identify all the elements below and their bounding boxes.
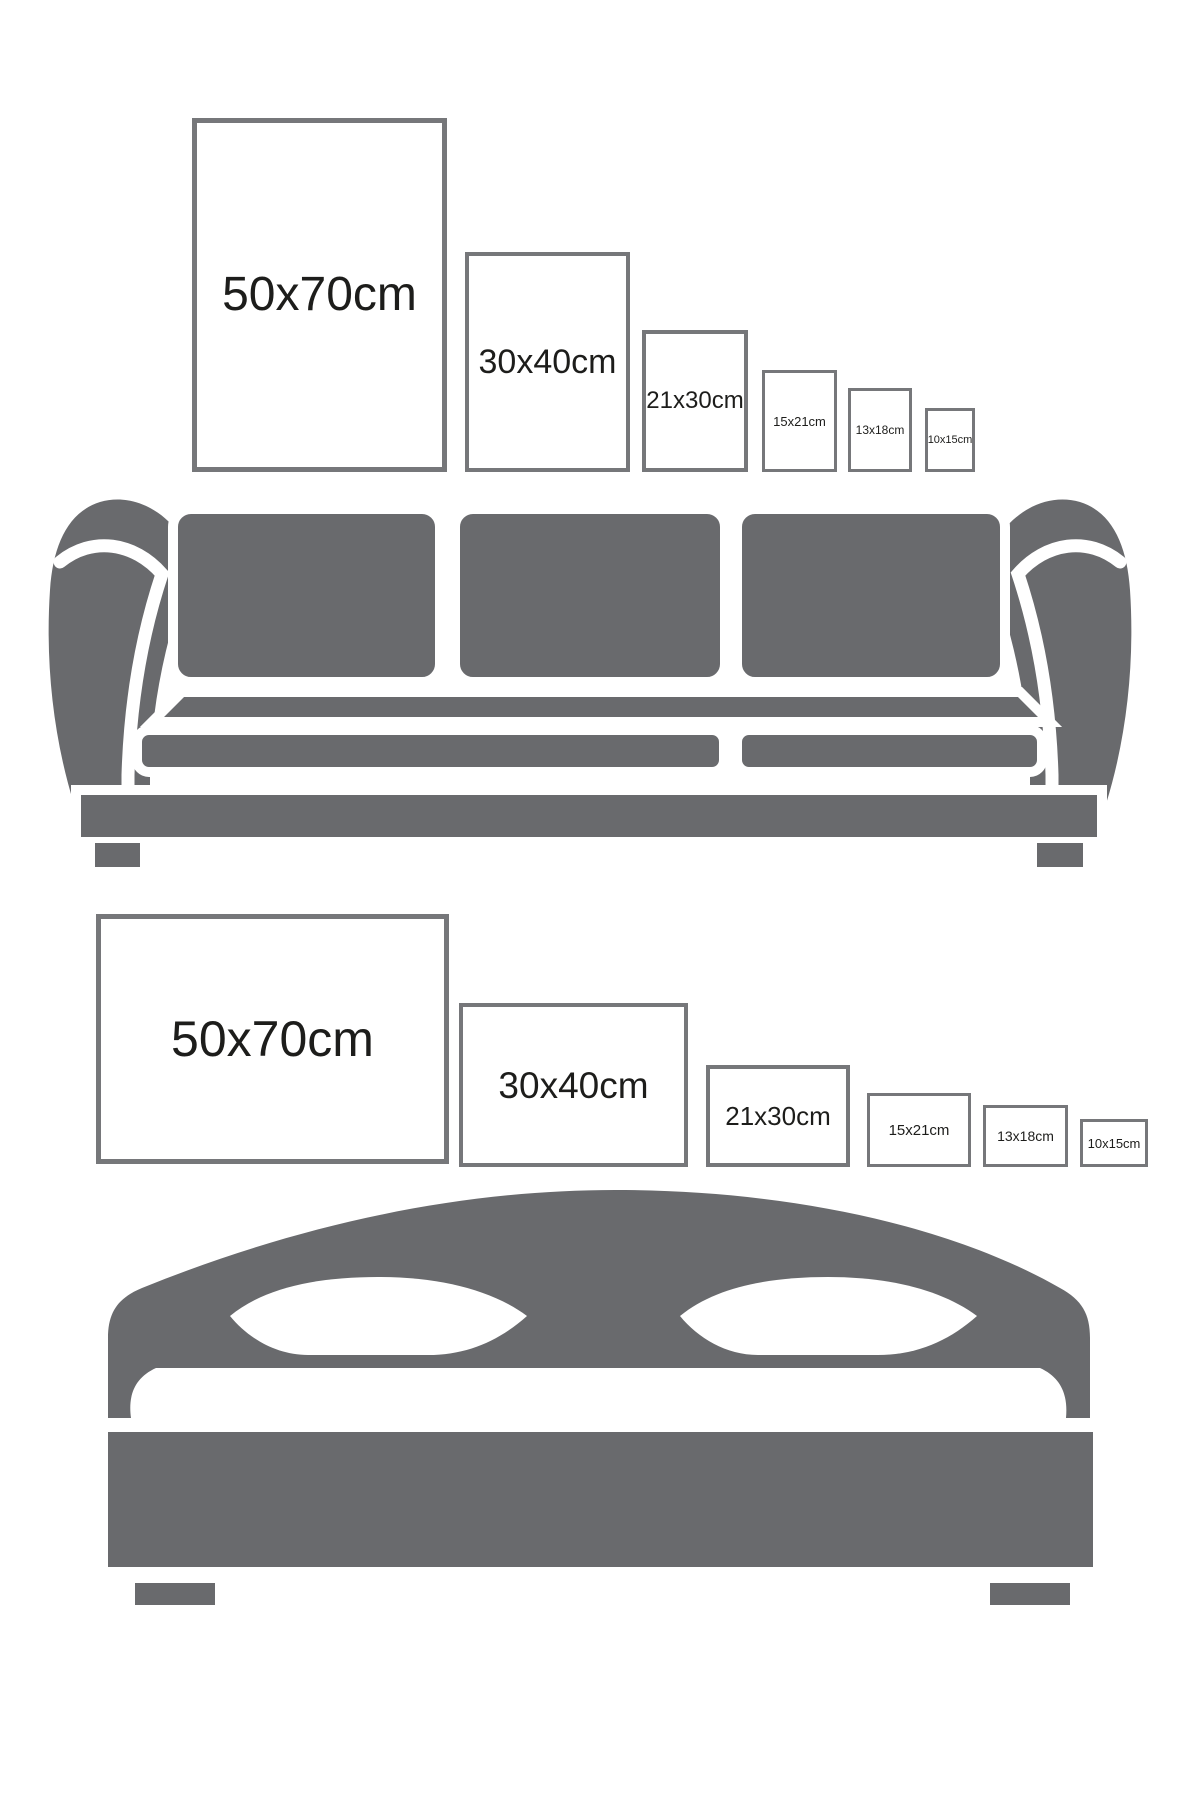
- frame-size-label: 15x21cm: [773, 415, 826, 428]
- frame-size-label: 13x18cm: [856, 424, 905, 436]
- sofa-back-cushion: [455, 509, 725, 682]
- sofa-seat-cushion: [737, 730, 1042, 772]
- bed-base: [108, 1432, 1093, 1567]
- frame-size-label: 13x18cm: [997, 1129, 1054, 1143]
- frame-size-label: 30x40cm: [498, 1067, 648, 1104]
- frame-landscape-50x70: 50x70cm: [96, 914, 449, 1164]
- frame-size-label: 30x40cm: [479, 345, 617, 379]
- frame-size-label: 21x30cm: [646, 389, 743, 413]
- frame-landscape-13x18: 13x18cm: [983, 1105, 1068, 1167]
- sofa-leg: [1037, 843, 1083, 867]
- bed-icon: [0, 1180, 1200, 1620]
- sofa-leg: [95, 843, 140, 867]
- sofa-icon: [0, 440, 1200, 872]
- frame-size-label: 50x70cm: [171, 1014, 374, 1064]
- frame-size-label: 50x70cm: [222, 271, 417, 319]
- frame-size-label: 15x21cm: [889, 1123, 950, 1138]
- sofa-seat-cushion: [137, 730, 724, 772]
- frame-landscape-21x30: 21x30cm: [706, 1065, 850, 1167]
- frame-landscape-30x40: 30x40cm: [459, 1003, 688, 1167]
- bed-leg: [135, 1583, 215, 1605]
- frame-portrait-50x70: 50x70cm: [192, 118, 447, 472]
- frame-landscape-15x21: 15x21cm: [867, 1093, 971, 1167]
- frame-size-label: 10x15cm: [1088, 1137, 1141, 1150]
- sofa-back-cushion: [737, 509, 1005, 682]
- frame-size-label: 21x30cm: [725, 1103, 831, 1129]
- sofa-seat-deck: [152, 692, 1050, 722]
- sofa-back-cushion: [173, 509, 440, 682]
- frame-portrait-30x40: 30x40cm: [465, 252, 630, 472]
- frame-landscape-10x15: 10x15cm: [1080, 1119, 1148, 1167]
- sofa-base: [76, 790, 1102, 842]
- bed-leg: [990, 1583, 1070, 1605]
- size-guide-page: 50x70cm 30x40cm 21x30cm 15x21cm 13x18cm …: [0, 0, 1200, 1800]
